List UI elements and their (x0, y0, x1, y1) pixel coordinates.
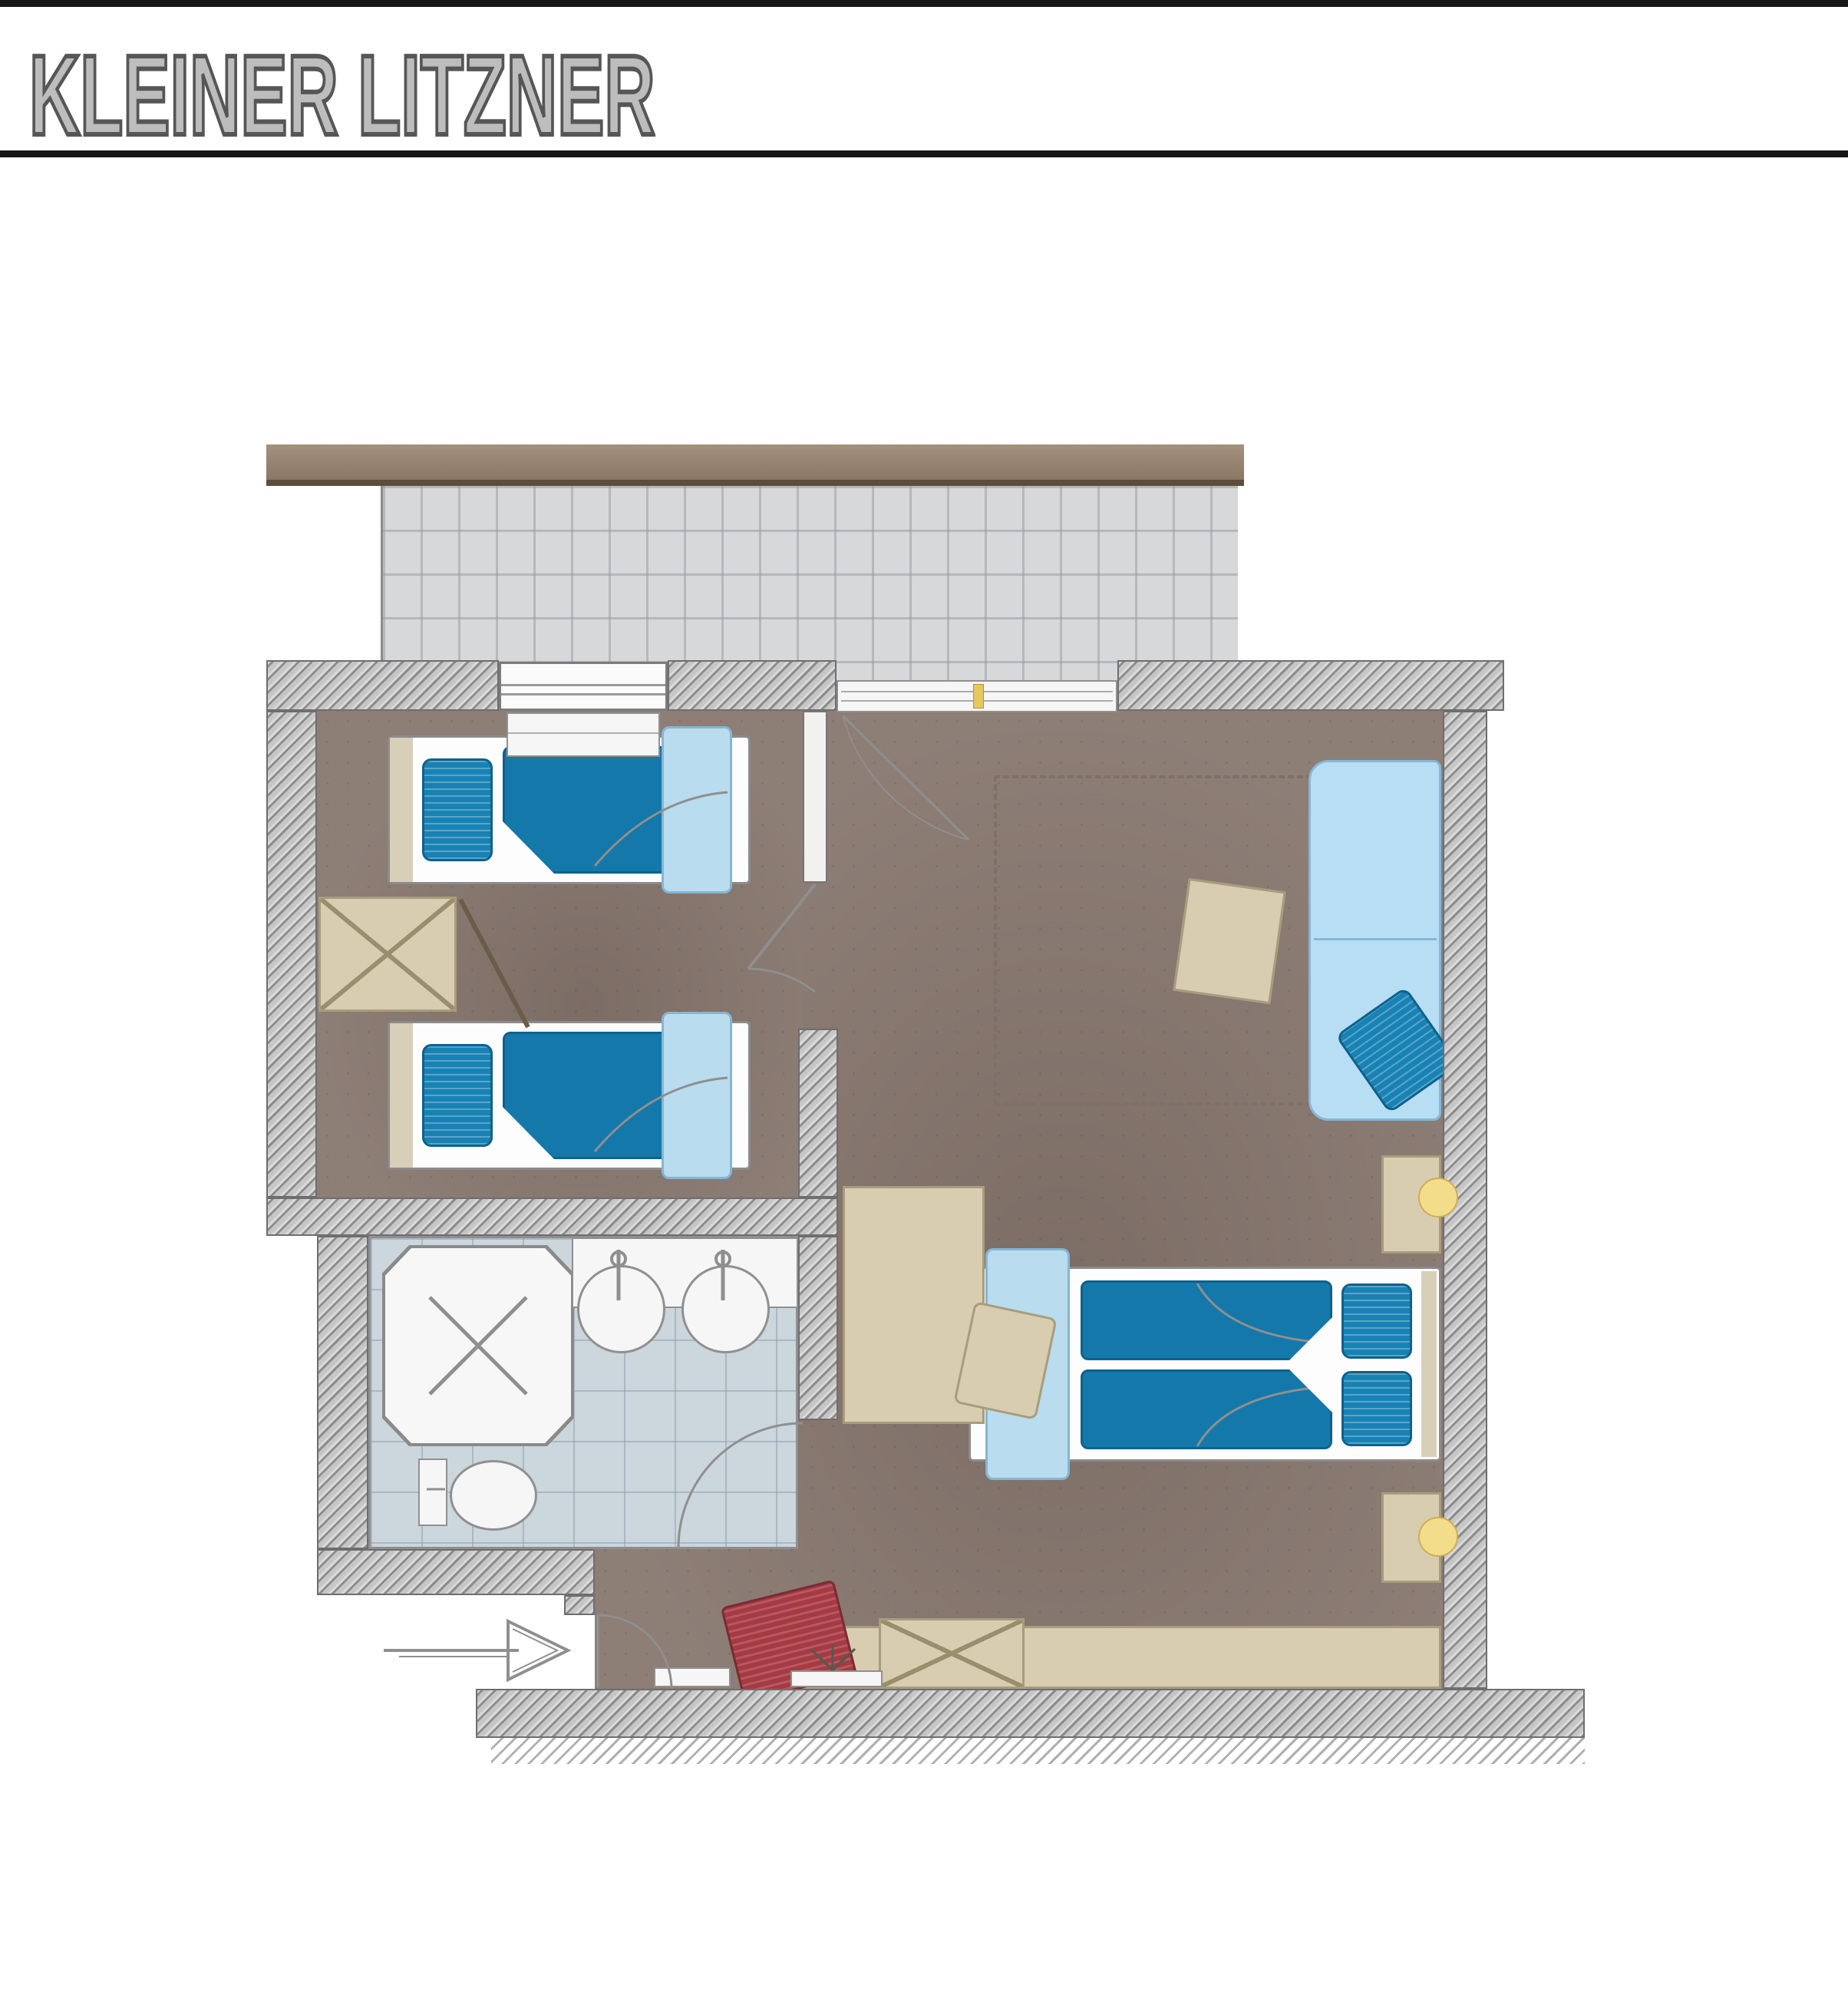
children-door-swing (748, 969, 815, 992)
double-bed-fold-upper (1197, 1283, 1332, 1343)
children-door-leaf (748, 884, 815, 969)
plant-icon (810, 1644, 855, 1670)
balcony-door-leaf (843, 715, 969, 840)
bathroom-door-swing (678, 1423, 803, 1548)
shower-valve-icon (430, 1297, 526, 1394)
bed1-duvet-notch (503, 821, 554, 874)
bed2-fold-line (595, 1078, 728, 1151)
wardrobe-door-leaf (460, 900, 528, 1027)
plan-sketch-overlay (0, 0, 1848, 2002)
floorplan-page: KLEINER LITZNER (0, 0, 1848, 2002)
double-bed-fold-lower (1197, 1386, 1332, 1446)
bed2-duvet-notch (503, 1107, 554, 1159)
entry-door-swing (598, 1615, 672, 1689)
bed1-fold-line (595, 792, 728, 866)
